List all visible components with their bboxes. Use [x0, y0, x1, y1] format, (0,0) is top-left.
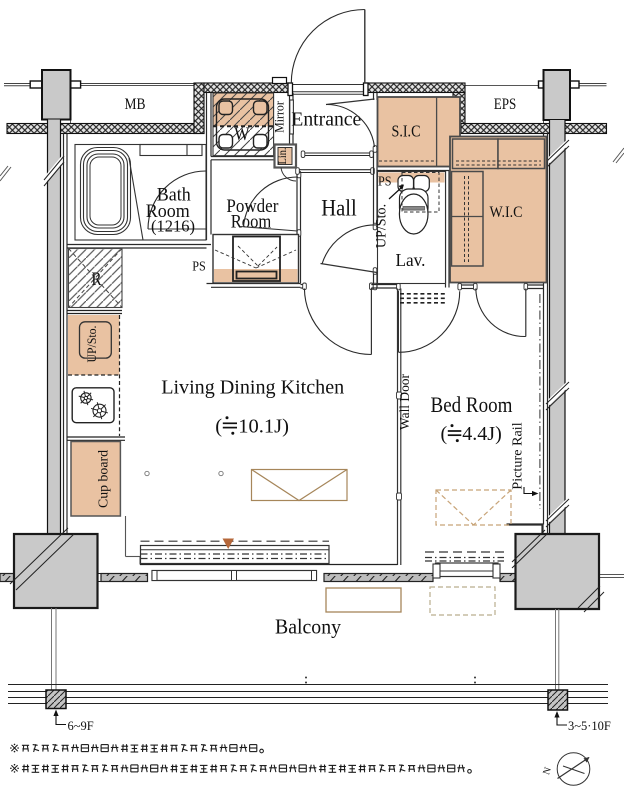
svg-text:Living Dining Kitchen: Living Dining Kitchen: [161, 377, 344, 399]
svg-text:PS: PS: [378, 173, 392, 188]
svg-text:(: (: [215, 416, 222, 438]
svg-text:R: R: [92, 269, 102, 290]
svg-text:Picture Rail: Picture Rail: [511, 422, 526, 489]
svg-text:PS: PS: [192, 258, 206, 273]
svg-text:Lin.: Lin.: [277, 147, 289, 164]
svg-text:Balcony: Balcony: [275, 615, 341, 639]
svg-text:4.4J): 4.4J): [462, 423, 501, 445]
svg-text:Hall: Hall: [321, 196, 357, 221]
svg-text:UP/Sto.: UP/Sto.: [374, 204, 390, 248]
svg-text:6~9F: 6~9F: [68, 719, 94, 733]
svg-text:Mirror: Mirror: [273, 100, 287, 132]
svg-text:Entrance: Entrance: [291, 109, 361, 131]
svg-text:(1216): (1216): [151, 217, 195, 236]
svg-text:10.1J): 10.1J): [238, 416, 289, 438]
svg-text:3~5·10F: 3~5·10F: [568, 719, 611, 733]
svg-text:MB: MB: [125, 96, 146, 113]
svg-text:S.I.C: S.I.C: [392, 122, 421, 141]
svg-text:UP/Sto.: UP/Sto.: [85, 326, 99, 363]
svg-text:Wall Door: Wall Door: [397, 374, 412, 430]
svg-text:W: W: [234, 124, 250, 145]
svg-text:Room: Room: [231, 212, 272, 233]
svg-text:Cup board: Cup board: [96, 450, 111, 508]
svg-text:EPS: EPS: [494, 96, 517, 113]
svg-text:W.I.C: W.I.C: [490, 204, 523, 221]
svg-text:Lav.: Lav.: [396, 250, 426, 270]
svg-text:(: (: [441, 423, 448, 445]
svg-text:Bed Room: Bed Room: [431, 392, 513, 417]
